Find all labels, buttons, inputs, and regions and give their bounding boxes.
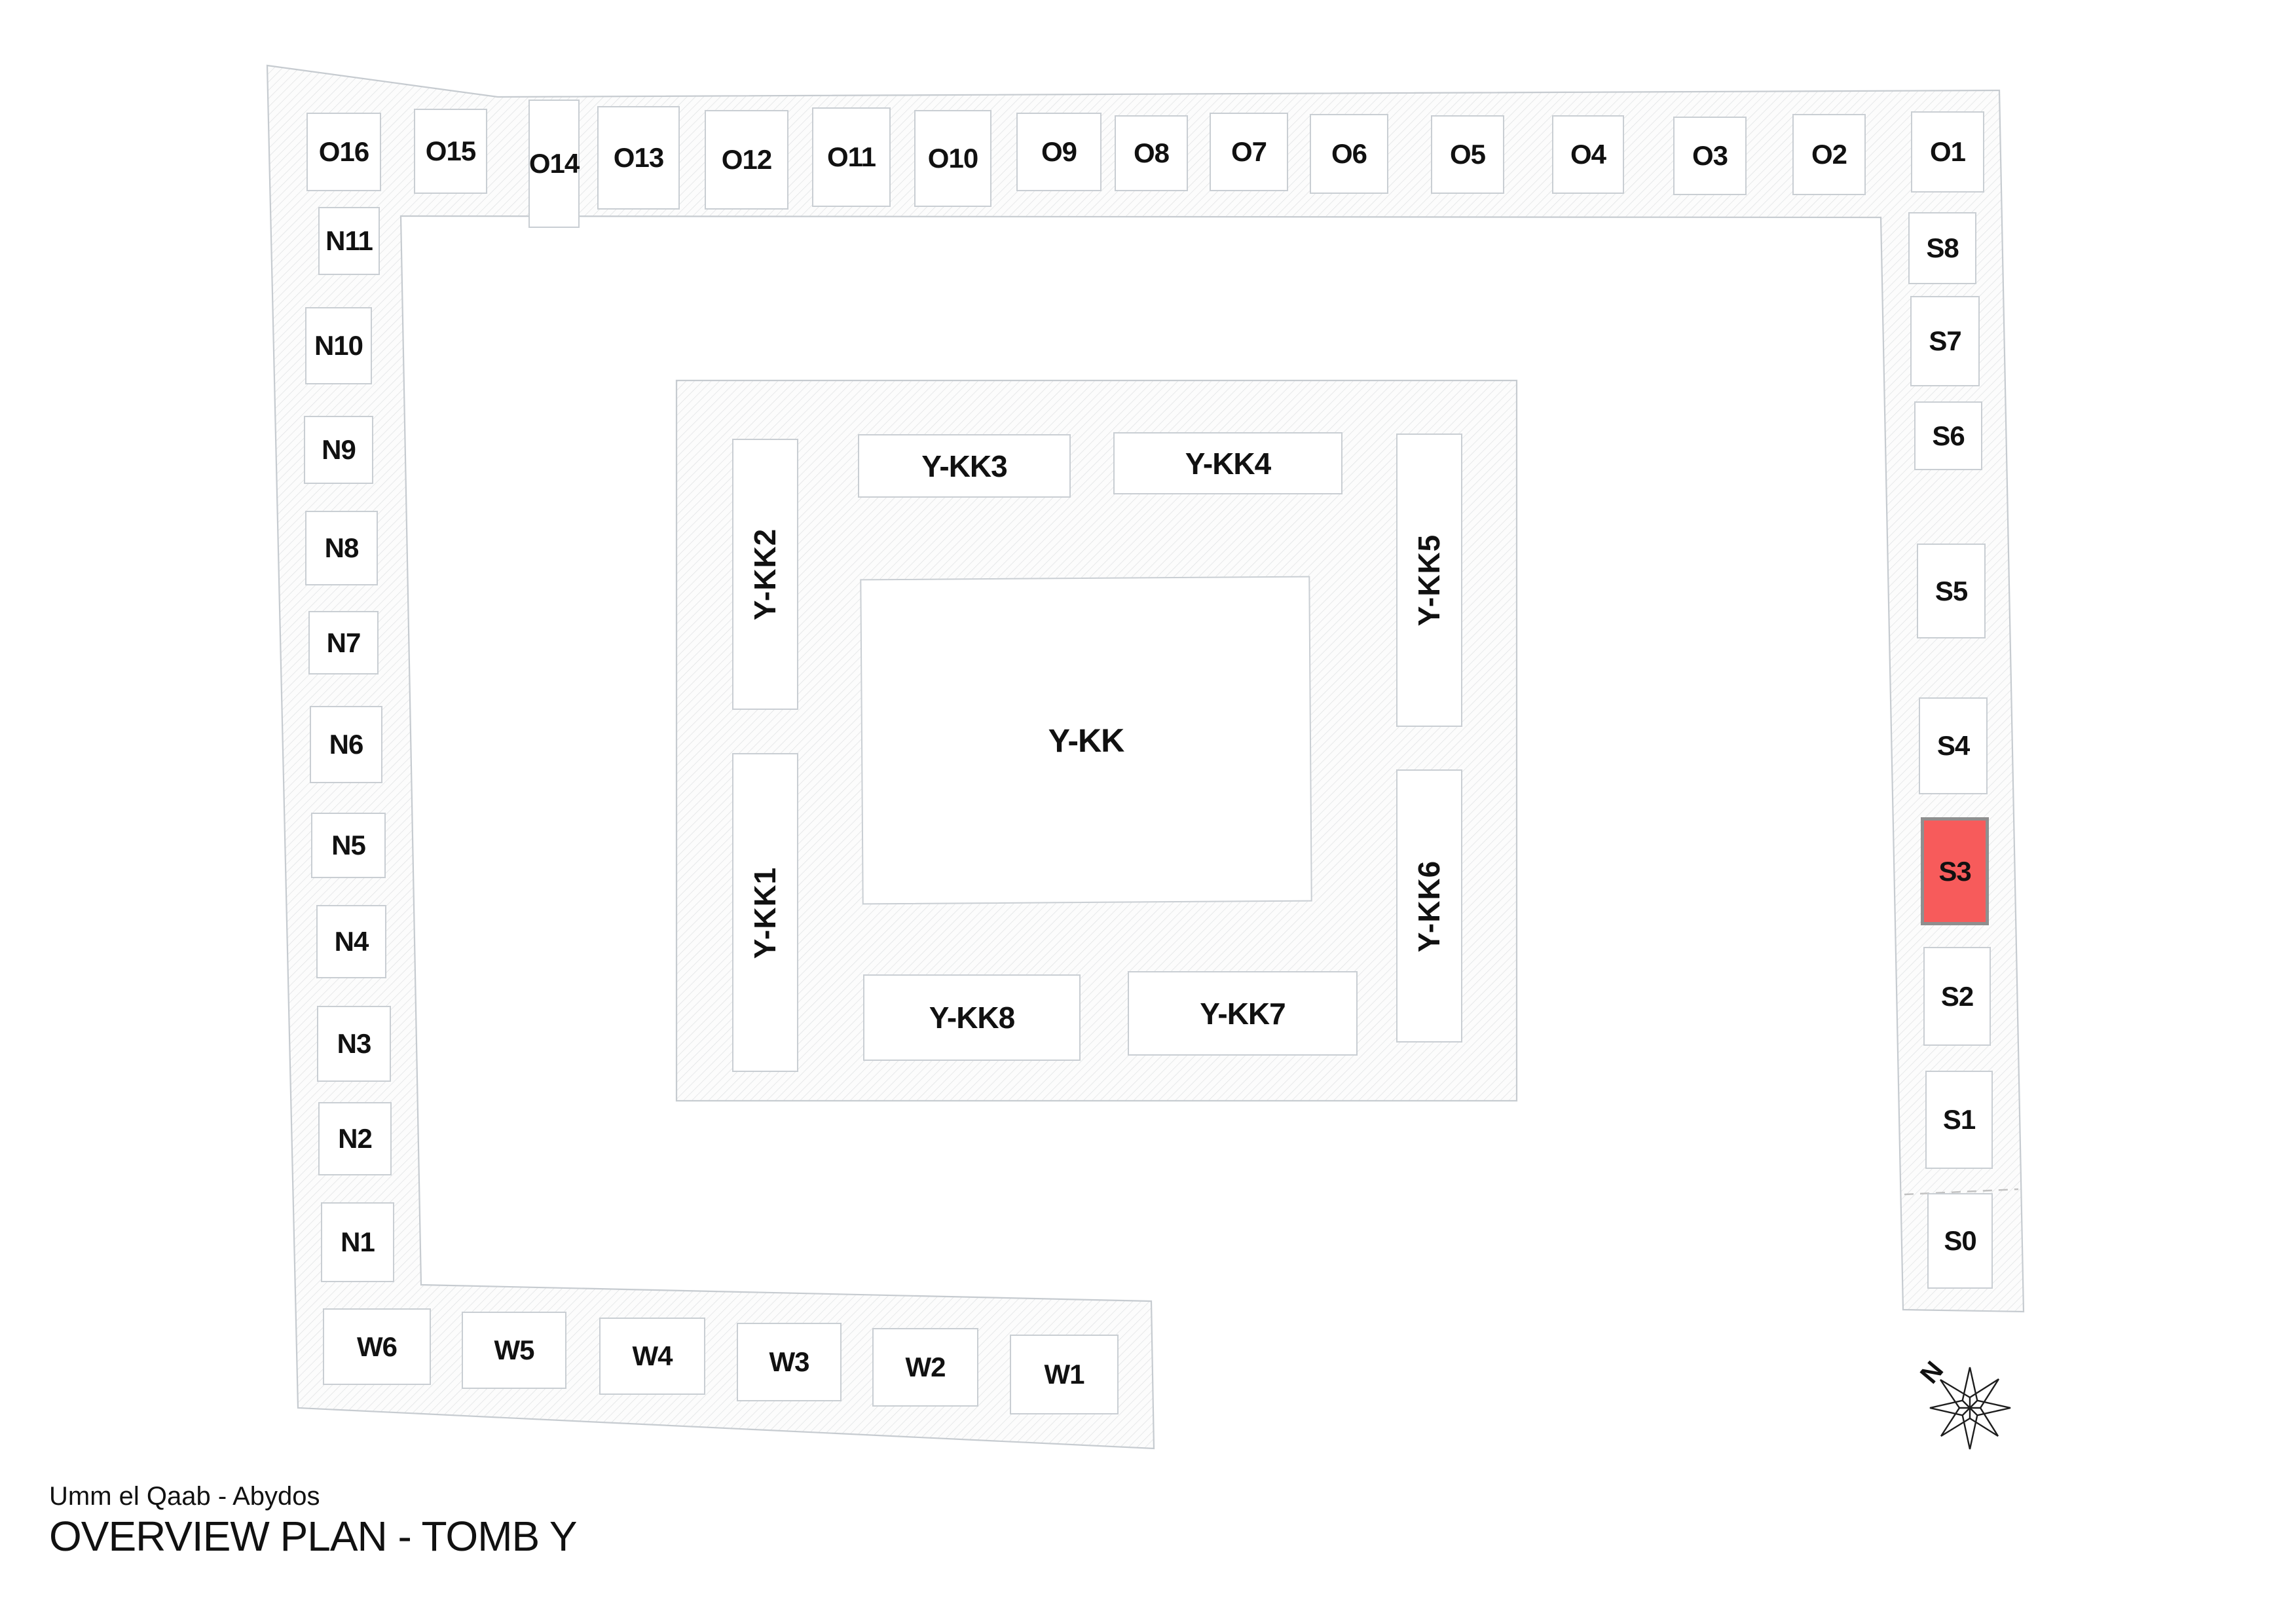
room-S3[interactable]: S3 <box>1921 817 1989 925</box>
plan-title: OVERVIEW PLAN - TOMB Y <box>49 1511 577 1562</box>
room-label: S2 <box>1941 981 1973 1012</box>
room-W4[interactable]: W4 <box>599 1318 705 1395</box>
room-label: Y-KK3 <box>921 449 1007 484</box>
room-N8[interactable]: N8 <box>305 511 378 585</box>
room-label: N3 <box>337 1028 371 1060</box>
room-O1[interactable]: O1 <box>1911 111 1984 193</box>
room-label: Y-KK7 <box>1200 996 1285 1031</box>
room-Y-KK6[interactable]: Y-KK6 <box>1396 769 1462 1043</box>
room-label: O8 <box>1134 138 1169 169</box>
room-label: Y-KK4 <box>1185 446 1270 481</box>
room-label: Y-KK8 <box>929 1000 1014 1035</box>
room-O3[interactable]: O3 <box>1673 117 1747 195</box>
room-label: W1 <box>1045 1359 1084 1390</box>
rooms-layer: O16O15O14O13O12O11O10O9O8O7O6O5O4O3O2O1N… <box>0 0 2296 1624</box>
room-S5[interactable]: S5 <box>1917 544 1986 638</box>
room-O5[interactable]: O5 <box>1431 115 1504 194</box>
room-Y-KK2[interactable]: Y-KK2 <box>732 439 798 710</box>
room-O11[interactable]: O11 <box>812 107 891 207</box>
room-O7[interactable]: O7 <box>1210 113 1288 191</box>
room-W2[interactable]: W2 <box>872 1328 978 1407</box>
room-O2[interactable]: O2 <box>1792 114 1866 195</box>
room-label: O10 <box>928 143 978 174</box>
room-S1[interactable]: S1 <box>1925 1071 1993 1169</box>
room-label: W5 <box>494 1335 534 1366</box>
room-label: S0 <box>1944 1225 1976 1257</box>
room-label: O4 <box>1570 139 1606 170</box>
room-label: O13 <box>614 142 663 174</box>
room-label: Y-KK1 <box>748 866 783 958</box>
room-Y-KK3[interactable]: Y-KK3 <box>858 434 1071 498</box>
room-label: Y-KK6 <box>1412 860 1447 951</box>
room-label: S3 <box>1938 856 1971 887</box>
room-label: N5 <box>331 830 365 861</box>
room-S7[interactable]: S7 <box>1910 296 1980 386</box>
plan-subtitle: Umm el Qaab - Abydos <box>49 1481 577 1511</box>
room-label: O12 <box>722 144 771 175</box>
room-label: O7 <box>1231 136 1267 168</box>
room-O16[interactable]: O16 <box>306 113 381 191</box>
room-label: Y-KK <box>1048 721 1124 760</box>
room-O13[interactable]: O13 <box>597 106 680 210</box>
room-N4[interactable]: N4 <box>316 905 386 978</box>
site-plan: N O16O15O14O13O12O11O10O9O8O7O6O5O4O3O2O… <box>0 0 2296 1624</box>
room-label: Y-KK2 <box>748 528 783 620</box>
room-N9[interactable]: N9 <box>304 416 373 484</box>
room-Y-KK1[interactable]: Y-KK1 <box>732 753 798 1072</box>
room-label: S4 <box>1937 730 1969 762</box>
room-Y-KK4[interactable]: Y-KK4 <box>1113 432 1342 494</box>
room-label: S5 <box>1935 576 1967 607</box>
room-label: O2 <box>1811 139 1847 170</box>
room-label: S7 <box>1929 325 1961 357</box>
room-N10[interactable]: N10 <box>305 307 372 384</box>
room-label: O15 <box>426 136 475 167</box>
room-S8[interactable]: S8 <box>1908 212 1976 284</box>
room-O6[interactable]: O6 <box>1310 114 1388 194</box>
room-W5[interactable]: W5 <box>462 1312 566 1389</box>
room-N7[interactable]: N7 <box>308 611 379 674</box>
room-label: O9 <box>1041 136 1077 168</box>
room-O9[interactable]: O9 <box>1016 113 1102 191</box>
title-block: Umm el Qaab - Abydos OVERVIEW PLAN - TOM… <box>49 1481 577 1562</box>
room-label: O1 <box>1930 136 1965 168</box>
room-Y-KK7[interactable]: Y-KK7 <box>1128 971 1358 1056</box>
room-Y-KK[interactable]: Y-KK <box>860 576 1312 905</box>
room-N2[interactable]: N2 <box>318 1102 392 1175</box>
room-label: Y-KK5 <box>1412 534 1447 626</box>
room-label: N6 <box>329 729 363 760</box>
room-N5[interactable]: N5 <box>311 813 386 878</box>
room-label: O6 <box>1331 138 1367 170</box>
room-label: S8 <box>1926 232 1958 264</box>
room-label: N9 <box>322 434 356 466</box>
room-label: W2 <box>906 1352 946 1383</box>
room-label: N4 <box>335 926 369 957</box>
room-W6[interactable]: W6 <box>323 1308 431 1385</box>
room-Y-KK8[interactable]: Y-KK8 <box>863 974 1081 1061</box>
room-N1[interactable]: N1 <box>321 1202 394 1282</box>
room-label: O14 <box>529 148 579 179</box>
room-label: N7 <box>327 627 361 659</box>
room-label: W3 <box>769 1346 809 1378</box>
room-label: S6 <box>1932 420 1964 452</box>
room-label: O3 <box>1692 140 1728 172</box>
room-N11[interactable]: N11 <box>318 207 380 275</box>
room-label: O16 <box>319 136 369 168</box>
room-label: N11 <box>325 225 373 257</box>
room-label: W6 <box>357 1331 397 1363</box>
room-label: O11 <box>827 141 876 173</box>
room-Y-KK5[interactable]: Y-KK5 <box>1396 434 1462 727</box>
room-O15[interactable]: O15 <box>414 109 487 194</box>
room-S6[interactable]: S6 <box>1914 401 1982 470</box>
room-label: N10 <box>314 330 363 361</box>
room-N6[interactable]: N6 <box>310 706 382 783</box>
room-N3[interactable]: N3 <box>317 1006 391 1082</box>
room-label: N8 <box>325 532 359 564</box>
room-label: S1 <box>1943 1104 1975 1135</box>
room-S0[interactable]: S0 <box>1927 1193 1993 1289</box>
room-label: O5 <box>1450 139 1485 170</box>
room-O8[interactable]: O8 <box>1115 115 1188 191</box>
room-W1[interactable]: W1 <box>1010 1335 1119 1414</box>
room-label: W4 <box>633 1340 673 1372</box>
room-label: N1 <box>341 1227 375 1258</box>
room-O14[interactable]: O14 <box>528 100 580 228</box>
room-O4[interactable]: O4 <box>1552 115 1624 194</box>
room-label: N2 <box>338 1123 372 1154</box>
room-W3[interactable]: W3 <box>737 1323 842 1401</box>
room-O10[interactable]: O10 <box>914 110 991 207</box>
room-S2[interactable]: S2 <box>1923 947 1991 1046</box>
room-O12[interactable]: O12 <box>705 110 788 210</box>
room-S4[interactable]: S4 <box>1919 697 1988 794</box>
